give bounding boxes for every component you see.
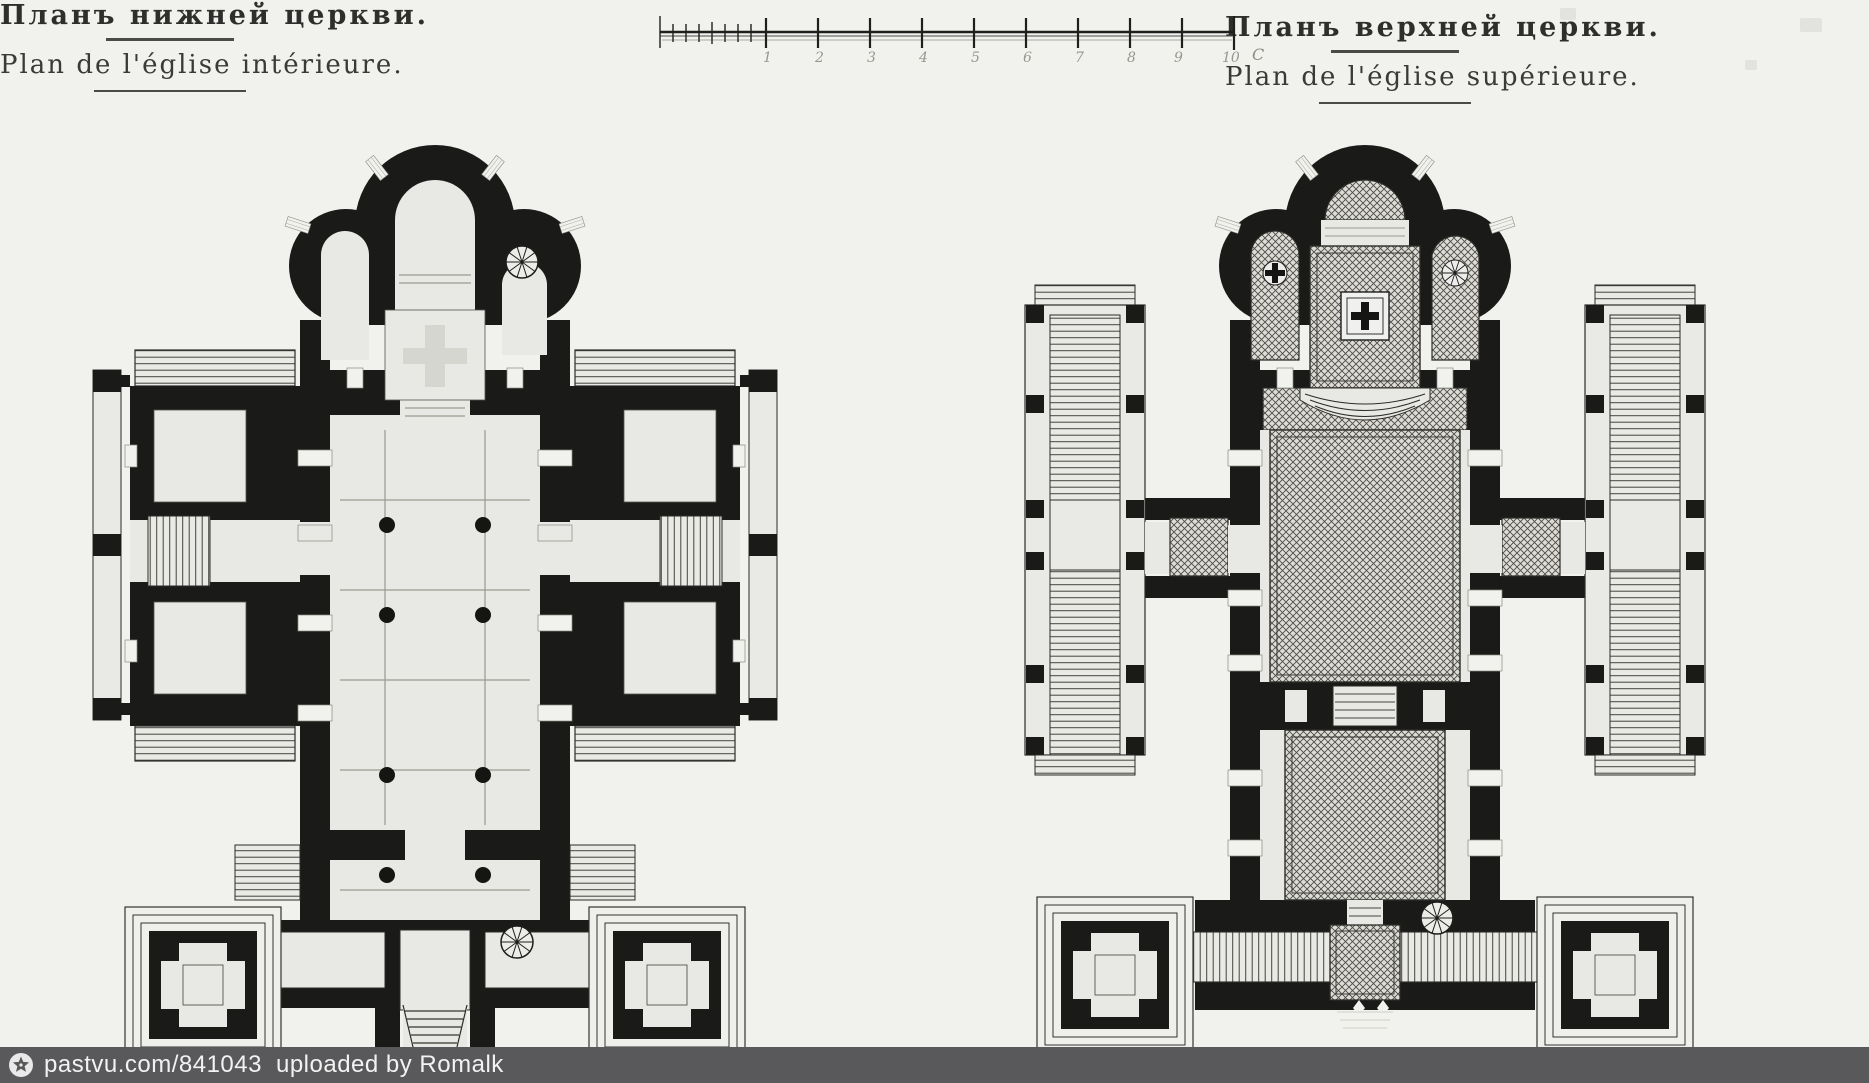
column-dot: [475, 607, 491, 623]
corner-pavilion-left: [1037, 897, 1193, 1053]
stair-gallery-left: [1025, 285, 1145, 775]
spiral-staircase-icon: [501, 926, 533, 958]
scale-tick-label: 8: [1127, 50, 1136, 66]
entrance-porch: [400, 930, 470, 1010]
scale-unit-label: С: [1252, 45, 1264, 64]
scale-bar-line: [660, 32, 1234, 40]
vestibule-left: [1145, 518, 1262, 576]
side-portico-steps-left: [235, 845, 300, 900]
column-dot: [379, 867, 395, 883]
narthex-floor: [1285, 730, 1445, 900]
scale-tick-label: 9: [1174, 50, 1183, 66]
scale-tick-label: 2: [814, 50, 824, 66]
column-dot: [475, 767, 491, 783]
upper-church-plan-drawing: [985, 70, 1745, 1070]
side-wing-right: [570, 350, 745, 761]
naos-floor: [330, 415, 540, 830]
scanned-plan-page: Планъ нижней церкви. Plan de l'église in…: [0, 0, 1869, 1083]
paper-blot: [1800, 18, 1822, 32]
scale-tick-label: 3: [867, 50, 876, 66]
chapel-cross-emblem: [1263, 261, 1287, 285]
scale-tick-label: 4: [918, 50, 928, 66]
side-chapel-right-floor: [1432, 236, 1479, 360]
stepped-walkway-right: [1400, 932, 1537, 982]
scale-tick-label: 1: [763, 50, 772, 66]
spiral-staircase-icon: [1421, 902, 1453, 934]
lower-church-plan-drawing: [55, 70, 815, 1070]
stair-gallery-right: [1585, 285, 1705, 775]
corner-pavilion-right: [1537, 897, 1693, 1053]
column-dot: [379, 767, 395, 783]
scale-bar: 1 2 3 4 5 6 7 8 9 10 С: [650, 10, 1280, 66]
star-circle-icon: [8, 1052, 34, 1078]
caption-left-russian: Планъ нижней церкви.: [0, 0, 340, 31]
column-dot: [475, 517, 491, 533]
side-chapel-left: [321, 231, 369, 360]
upper-church-floors: [1251, 180, 1479, 900]
scale-tick-label: 10: [1222, 50, 1240, 66]
side-wing-left: [125, 350, 300, 761]
outer-gallery-wall-right: [740, 370, 777, 720]
side-portico-steps-right: [570, 845, 635, 900]
watermark-credit: uploaded by Romalk: [276, 1051, 504, 1079]
spiral-staircase-icon: [506, 246, 538, 278]
hall-narthex-steps: [1333, 686, 1397, 726]
scale-tick-label: 5: [971, 50, 980, 66]
paper-blot: [1560, 8, 1576, 20]
vestibule-right: [1468, 518, 1585, 576]
column-dot: [379, 517, 395, 533]
paper-blot: [1745, 60, 1757, 70]
caption-left-rule: [106, 38, 234, 41]
watermark-bar: pastvu.com/841043 uploaded by Romalk: [0, 1047, 1869, 1083]
side-chapel-left-floor: [1251, 231, 1299, 360]
scale-tick-label: 7: [1075, 50, 1084, 66]
stepped-walkway-left: [1193, 932, 1330, 982]
apse-step-band: [1321, 220, 1409, 246]
apse-room: [395, 180, 475, 310]
column-dot: [475, 867, 491, 883]
altar-cross-emblem: [1341, 292, 1389, 340]
porch-steps: [403, 1005, 467, 1047]
column-dot: [379, 607, 395, 623]
corner-pavilion-left: [125, 907, 281, 1063]
scale-bar-labels: 1 2 3 4 5 6 7 8 9 10 С: [763, 45, 1264, 66]
great-hall-floor: [1270, 430, 1460, 682]
corner-pavilion-right: [589, 907, 745, 1063]
fan-window: [1442, 260, 1468, 286]
watermark-site: pastvu.com/841043: [44, 1051, 262, 1079]
caption-right-rule: [1331, 50, 1459, 53]
scale-tick-label: 6: [1023, 50, 1032, 66]
outer-gallery-wall-left: [93, 370, 130, 720]
